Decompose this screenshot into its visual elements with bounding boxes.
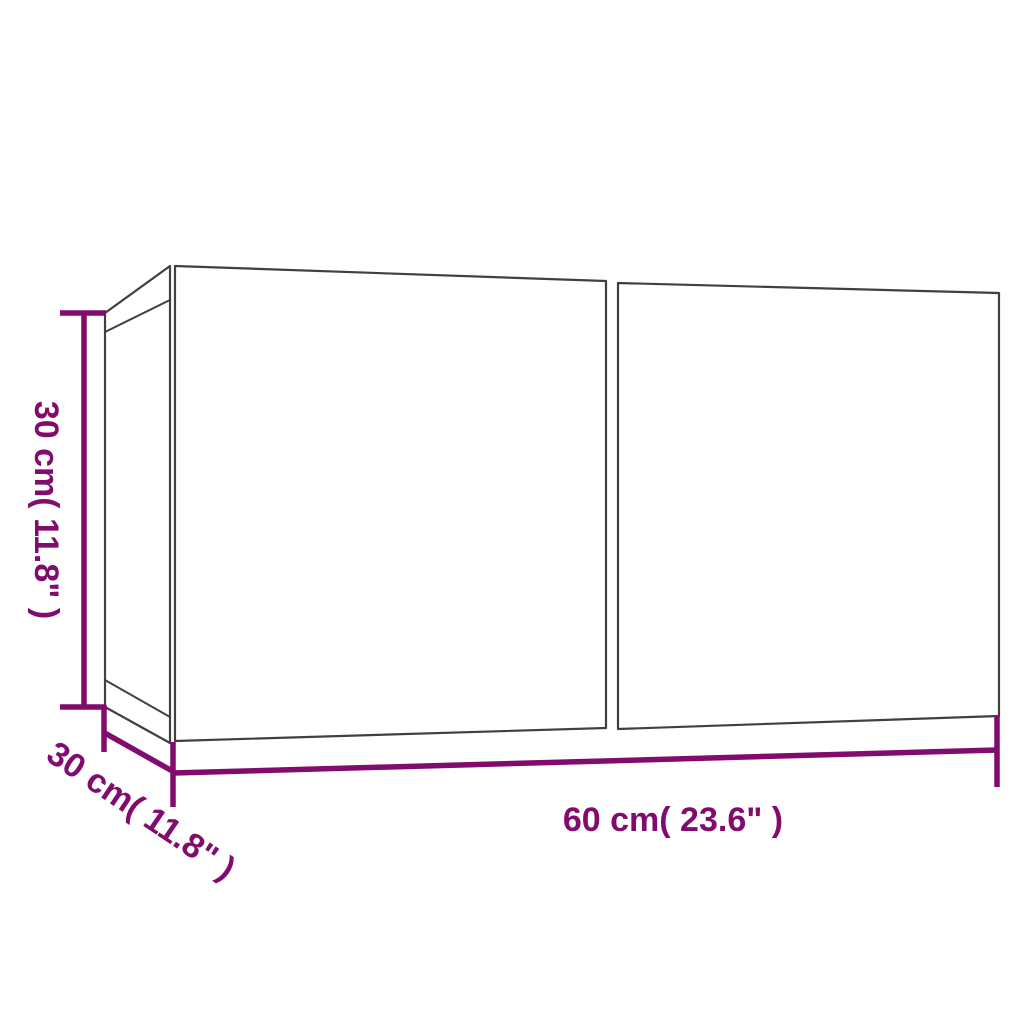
width-dimension-label: 60 cm( 23.6" ) [563,803,783,837]
cabinet-right-panel [618,283,999,729]
cabinet-left-panel [175,266,606,741]
cabinet-line-drawing [0,0,1024,1024]
cabinet-side-face [105,266,170,743]
height-dimension-label: 30 cm( 11.8" ) [29,401,63,619]
width-dimension-line [173,750,997,773]
product-dimension-diagram: 30 cm( 11.8" ) 30 cm( 11.8" ) 60 cm( 23.… [0,0,1024,1024]
